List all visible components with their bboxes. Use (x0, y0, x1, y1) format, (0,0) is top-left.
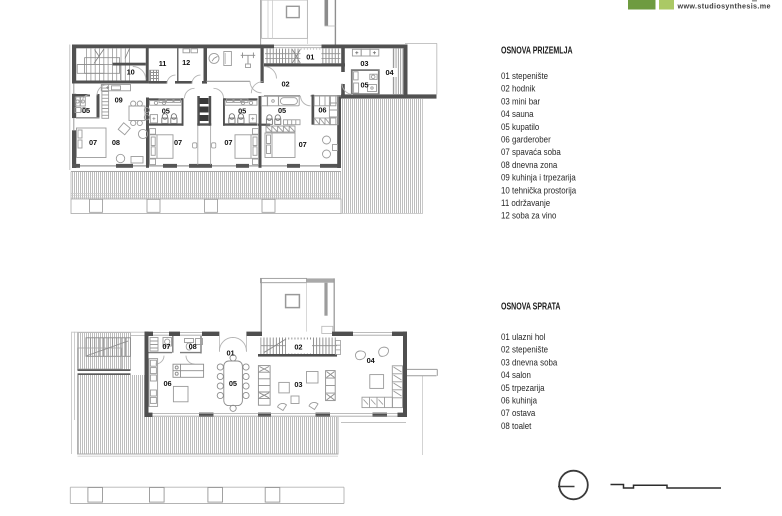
svg-text:02: 02 (294, 343, 302, 352)
svg-text:01: 01 (306, 53, 314, 62)
svg-text:03: 03 (294, 380, 302, 389)
svg-text:07 spavaća soba: 07 spavaća soba (501, 147, 561, 158)
svg-text:04: 04 (385, 68, 394, 77)
svg-text:05: 05 (229, 379, 237, 388)
svg-text:05 kupatilo: 05 kupatilo (501, 121, 540, 132)
svg-text:05: 05 (82, 106, 90, 115)
svg-text:06 garderober: 06 garderober (501, 134, 551, 145)
svg-text:07: 07 (174, 138, 182, 147)
svg-text:10: 10 (127, 67, 135, 76)
svg-text:12: 12 (182, 58, 190, 67)
svg-text:06: 06 (163, 379, 171, 388)
svg-text:02 stepenište: 02 stepenište (501, 344, 548, 355)
svg-text:07: 07 (162, 342, 170, 351)
svg-text:03: 03 (360, 59, 368, 68)
svg-text:05: 05 (360, 81, 368, 90)
svg-text:06: 06 (318, 106, 326, 115)
svg-text:www.studiosynthesis.me: www.studiosynthesis.me (677, 2, 771, 11)
svg-text:03 mini bar: 03 mini bar (501, 96, 540, 107)
svg-text:12 soba za vino: 12 soba za vino (501, 210, 557, 221)
svg-text:11: 11 (159, 59, 167, 68)
svg-text:05 trpezarija: 05 trpezarija (501, 382, 545, 393)
svg-text:01: 01 (226, 348, 234, 357)
svg-text:02 hodnik: 02 hodnik (501, 83, 536, 94)
svg-text:08 dnevna zona: 08 dnevna zona (501, 159, 558, 170)
svg-text:11 održavanje: 11 održavanje (501, 198, 550, 209)
svg-text:06 kuhinja: 06 kuhinja (501, 395, 537, 406)
svg-text:08: 08 (189, 342, 197, 351)
svg-text:02: 02 (281, 79, 289, 88)
svg-text:OSNOVA PRIZEMLJA: OSNOVA PRIZEMLJA (501, 46, 573, 57)
svg-text:07: 07 (224, 138, 232, 147)
svg-text:04 salon: 04 salon (501, 370, 531, 381)
svg-text:07: 07 (89, 138, 97, 147)
svg-text:04: 04 (367, 356, 376, 365)
svg-text:05: 05 (278, 106, 286, 115)
svg-text:09 kuhinja i trpezarija: 09 kuhinja i trpezarija (501, 172, 576, 183)
svg-text:04 sauna: 04 sauna (501, 109, 534, 120)
svg-text:05: 05 (162, 106, 170, 115)
svg-text:OSNOVA SPRATA: OSNOVA SPRATA (501, 302, 561, 313)
svg-text:08 toalet: 08 toalet (501, 420, 532, 431)
svg-text:10 tehnička prostorija: 10 tehnička prostorija (501, 185, 576, 196)
svg-text:08: 08 (112, 138, 120, 147)
svg-text:07 ostava: 07 ostava (501, 408, 536, 419)
svg-text:05: 05 (238, 106, 246, 115)
svg-text:09: 09 (115, 95, 123, 104)
svg-text:03 dnevna soba: 03 dnevna soba (501, 357, 558, 368)
svg-text:01 ulazni hol: 01 ulazni hol (501, 332, 546, 343)
svg-text:01 stepenište: 01 stepenište (501, 71, 548, 82)
svg-text:07: 07 (299, 140, 307, 149)
